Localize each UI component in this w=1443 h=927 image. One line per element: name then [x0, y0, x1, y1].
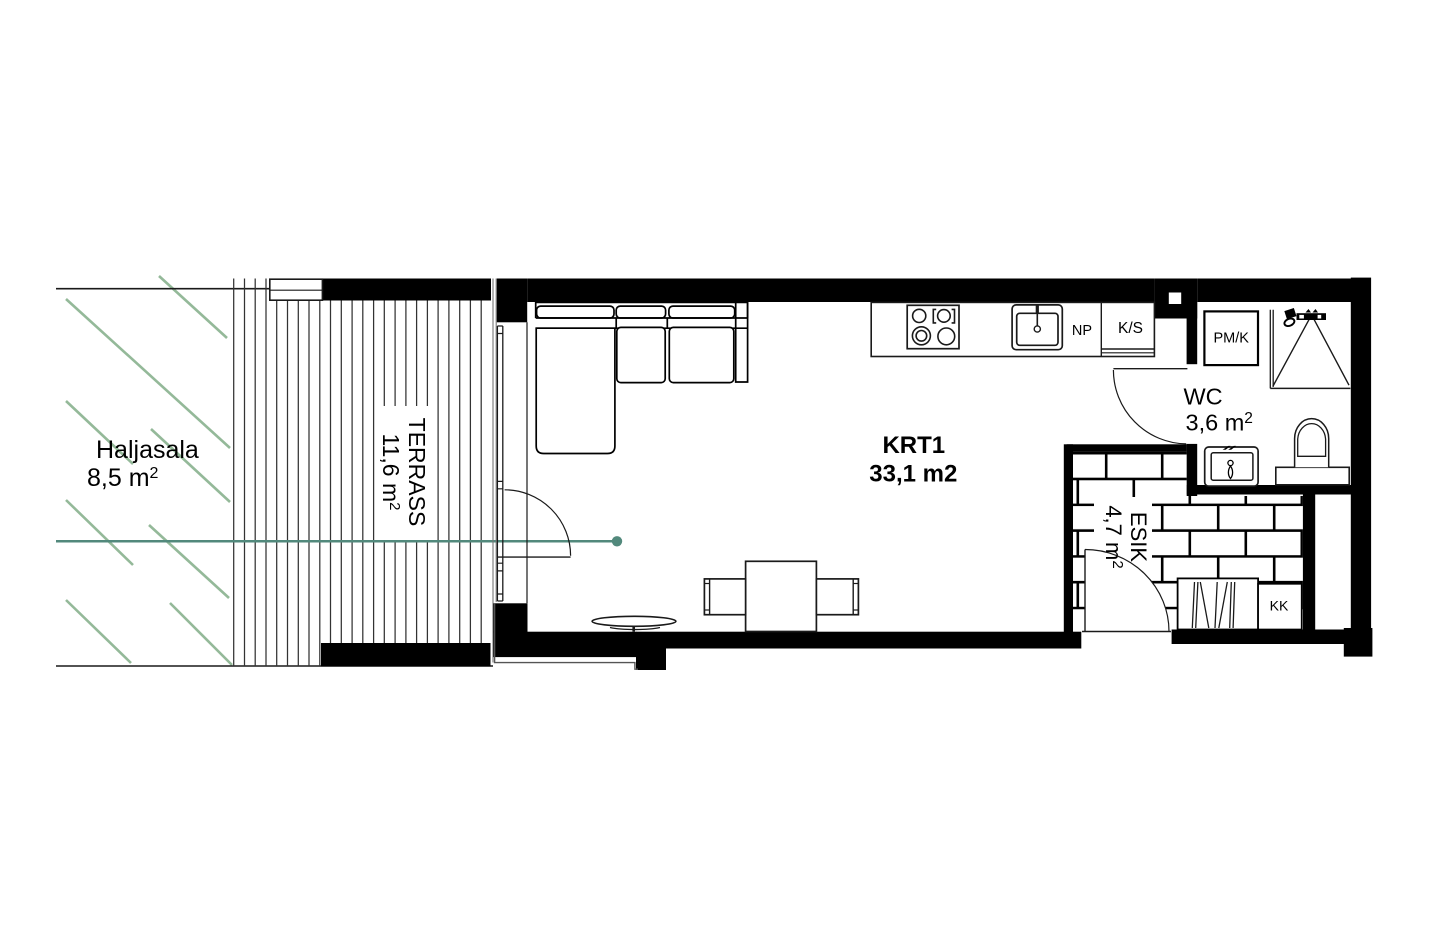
svg-text:3,6 m2: 3,6 m2: [1186, 410, 1253, 436]
svg-text:NP: NP: [1072, 323, 1092, 339]
svg-text:Haljasala: Haljasala: [96, 436, 199, 464]
svg-text:KK: KK: [1270, 598, 1289, 614]
svg-text:WC: WC: [1184, 383, 1223, 409]
svg-text:11,6 m2: 11,6 m2: [378, 434, 404, 511]
svg-text:K/S: K/S: [1118, 320, 1143, 337]
svg-text:KRT1: KRT1: [882, 432, 945, 459]
svg-text:ESIK: ESIK: [1126, 512, 1151, 562]
svg-text:8,5 m2: 8,5 m2: [87, 464, 159, 492]
svg-text:TERRASS: TERRASS: [404, 418, 430, 527]
svg-text:PM/K: PM/K: [1213, 331, 1249, 347]
svg-text:33,1 m2: 33,1 m2: [869, 461, 957, 488]
svg-text:4,7 m2: 4,7 m2: [1101, 505, 1126, 568]
